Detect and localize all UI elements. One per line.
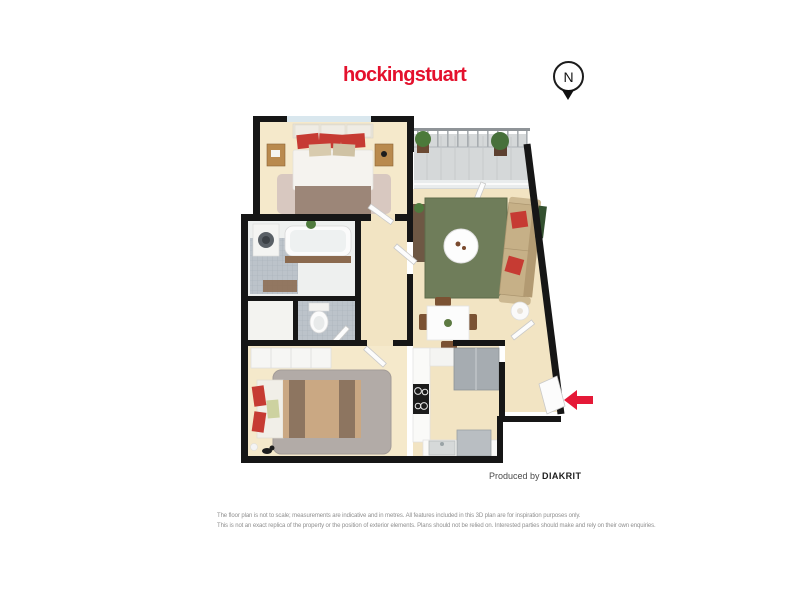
side-table-cup [517,308,523,314]
railing-lower [414,146,530,148]
credit-prefix: Produced by [489,471,542,481]
north-compass-icon: N [553,61,584,92]
tan-pillow [333,143,356,156]
bedroom-1-window [287,116,371,122]
bed-2-quilt-stripe [305,380,339,438]
disclaimer-line-1: The floor plan is not to scale; measurem… [217,511,656,521]
faucet-icon [440,442,444,446]
hallway-floor [361,214,407,346]
toilet-tank [309,303,329,311]
book [271,150,280,157]
potted-plant-icon [491,132,509,150]
producer-credit: Produced by DIAKRIT [489,471,581,481]
potted-plant-icon [415,131,431,147]
bath-mat [263,280,297,292]
centerpiece-plant-icon [444,319,452,327]
tan-pillow [309,143,332,156]
compass-pin-icon [562,90,574,100]
round-coffee-table [444,229,478,263]
bathtub-wood-panel [285,256,351,263]
lamp-icon [381,151,387,157]
railing-top [414,128,530,131]
nook-floor [248,301,293,340]
disclaimer: The floor plan is not to scale; measurem… [217,511,656,531]
console-plant-icon [414,203,424,213]
bathtub-inner [290,230,346,252]
kitchen-appliance [457,430,491,456]
table-decor [462,246,466,250]
floorplan-drawing [227,110,599,486]
quilt-edge [355,380,361,438]
dining-chair [435,297,451,306]
ball [251,444,258,451]
entry-arrow-icon [564,390,593,410]
green-pillow [266,400,280,419]
bed-duvet [293,150,373,190]
agency-logo: hockingstuart [343,64,466,87]
entry [539,376,593,414]
north-letter: N [563,69,573,85]
north-indicator: N [553,61,584,102]
toilet-seat [314,316,325,330]
bed-throw [295,186,371,216]
quilt-edge [283,380,289,438]
disclaimer-line-2: This is not an exact replica of the prop… [217,521,656,531]
table-decor [456,242,461,247]
sofa-red-cushion [510,211,528,229]
credit-brand: DIAKRIT [542,471,581,481]
kitchen-cabinet [430,348,454,366]
floorplan-page: hockingstuart N [0,0,800,600]
washer-drum-inner [262,236,270,244]
